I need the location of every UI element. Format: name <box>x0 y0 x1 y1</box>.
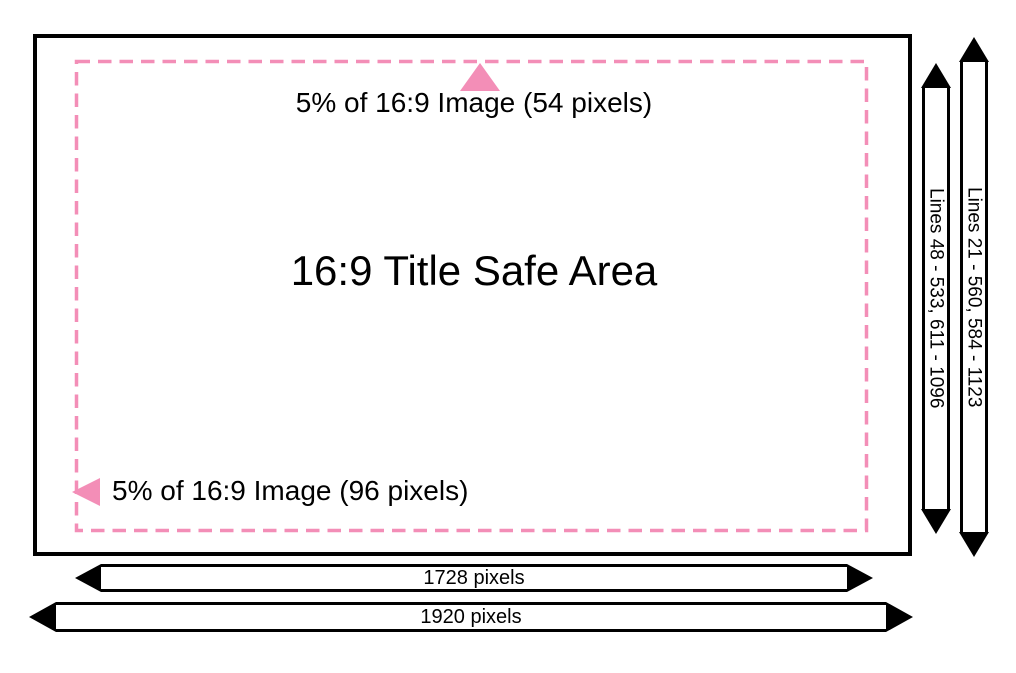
arrowhead-down-icon <box>959 532 989 557</box>
arrowhead-left-icon <box>75 564 101 592</box>
safe-width-label: 1728 pixels <box>423 568 524 588</box>
full-lines-label: Lines 21 - 560, 584 - 1123 <box>965 187 984 407</box>
arrowhead-right-icon <box>886 602 913 632</box>
dimension-bar: Lines 48 - 533, 611 - 1096 <box>922 88 950 509</box>
arrowhead-right-icon <box>847 564 873 592</box>
safe-area-dashed-rect <box>77 62 867 531</box>
dimension-bar: 1728 pixels <box>101 564 847 592</box>
full-width-label: 1920 pixels <box>420 607 521 627</box>
full-width-dimension-arrow: 1920 pixels <box>29 602 913 632</box>
title-safe-area-diagram: 16:9 Title Safe Area 5% of 16:9 Image (5… <box>0 0 1016 673</box>
dimension-bar: Lines 21 - 560, 584 - 1123 <box>960 62 988 532</box>
left-triangle-icon <box>72 478 100 506</box>
top-margin-label: 5% of 16:9 Image (54 pixels) <box>274 88 674 119</box>
arrowhead-up-icon <box>959 37 989 62</box>
safe-lines-dimension-arrow: Lines 48 - 533, 611 - 1096 <box>921 63 951 534</box>
safe-width-dimension-arrow: 1728 pixels <box>75 564 873 592</box>
dimension-bar: 1920 pixels <box>56 602 886 632</box>
full-lines-dimension-arrow: Lines 21 - 560, 584 - 1123 <box>959 37 989 557</box>
arrowhead-down-icon <box>921 509 951 534</box>
safe-lines-label: Lines 48 - 533, 611 - 1096 <box>927 188 946 408</box>
arrowhead-left-icon <box>29 602 56 632</box>
left-margin-label: 5% of 16:9 Image (96 pixels) <box>112 476 468 507</box>
diagram-title: 16:9 Title Safe Area <box>174 248 774 294</box>
arrowhead-up-icon <box>921 63 951 88</box>
